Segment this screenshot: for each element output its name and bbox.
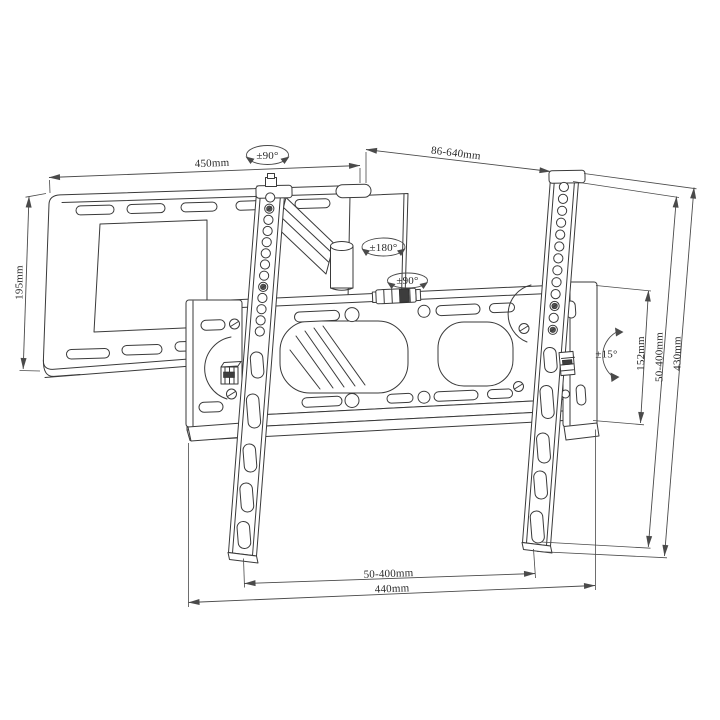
dim-side-plate-height: 152mm: [635, 336, 647, 371]
dim-rail-length: 430mm: [672, 336, 684, 371]
dim-vesa-horizontal: 50-400mm: [363, 567, 414, 581]
swivel-elbow-label: ±180°: [370, 242, 398, 254]
dim-extension-range: 86-640mm: [430, 145, 481, 163]
dim-beam-width: 440mm: [374, 582, 409, 595]
wall-mount-diagram: 450mm 86-640mm 195mm ±90° ±180° ±90° ±15…: [0, 0, 720, 720]
swivel-bracket-label: ±90°: [396, 275, 418, 287]
swivel-wall-label: ±90°: [256, 150, 278, 162]
dim-wall-plate-height: 195mm: [14, 265, 26, 300]
left-tilt-knob: [221, 362, 241, 385]
wall-pivot-cap: [336, 184, 371, 198]
dim-vesa-vertical: 50-400mm: [654, 332, 666, 382]
beam-clamp-bolt: [372, 288, 421, 304]
right-tilt-knob: [559, 351, 575, 375]
elbow-joint: [331, 242, 354, 291]
dim-wall-plate-width: 450mm: [195, 157, 230, 170]
technical-drawing-page: 450mm 86-640mm 195mm ±90° ±180° ±90° ±15…: [0, 0, 720, 720]
tilt-range-label: ±15°: [595, 349, 617, 361]
